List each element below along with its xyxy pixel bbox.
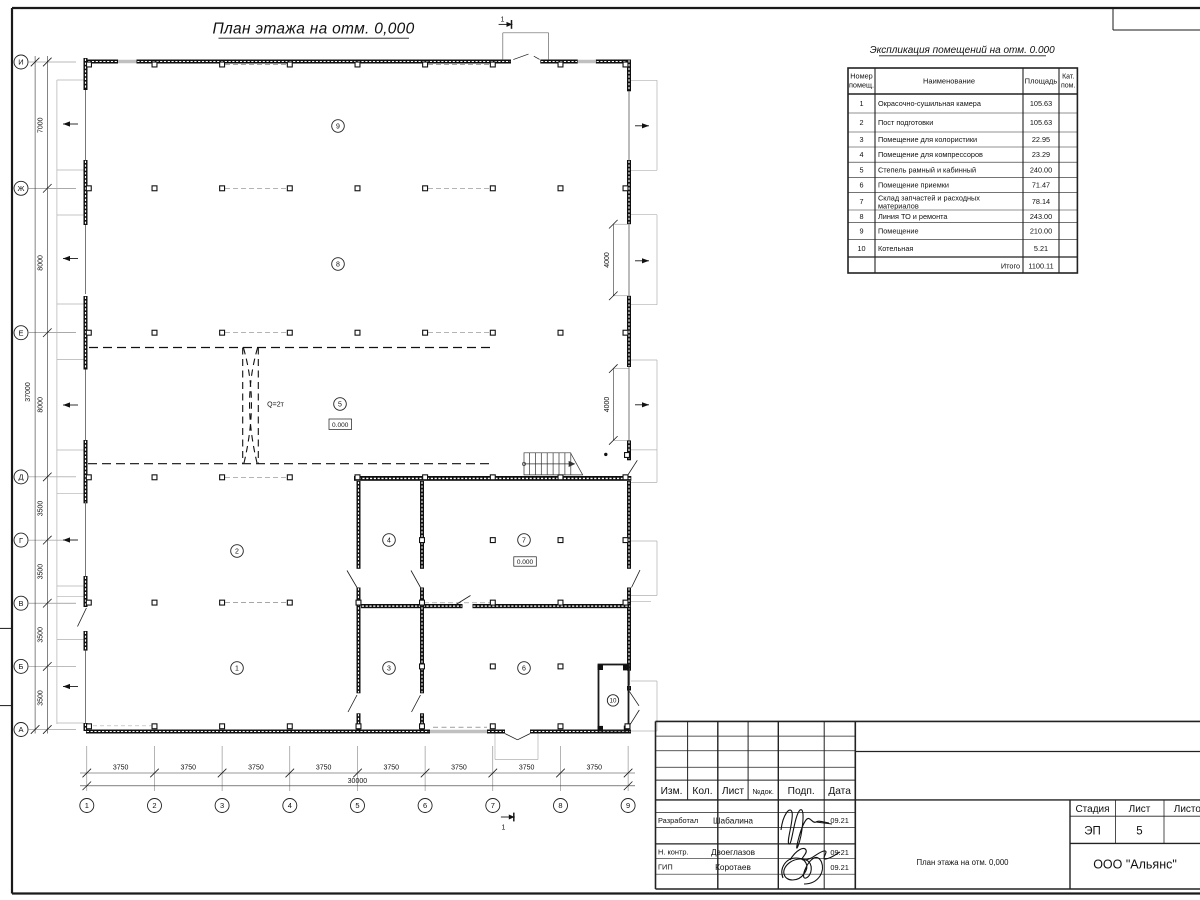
svg-text:Наименование: Наименование [923, 77, 975, 86]
svg-text:помещ.: помещ. [849, 81, 874, 90]
svg-text:2: 2 [152, 801, 156, 810]
svg-text:ГИП: ГИП [658, 863, 673, 872]
svg-text:8: 8 [558, 801, 562, 810]
svg-text:Кат.: Кат. [1062, 74, 1074, 81]
svg-text:10: 10 [857, 244, 865, 253]
svg-text:0.000: 0.000 [517, 559, 534, 566]
svg-text:240.00: 240.00 [1030, 165, 1052, 174]
svg-text:Лист: Лист [1129, 804, 1151, 815]
svg-text:3750: 3750 [181, 765, 197, 772]
svg-text:ООО "Альянс": ООО "Альянс" [1093, 858, 1177, 872]
svg-text:Дата: Дата [828, 786, 851, 797]
svg-text:3750: 3750 [248, 765, 264, 772]
svg-text:5: 5 [338, 402, 342, 409]
svg-text:3500: 3500 [37, 564, 44, 580]
svg-text:3750: 3750 [451, 765, 467, 772]
svg-text:3: 3 [220, 801, 224, 810]
svg-text:9: 9 [626, 801, 630, 810]
svg-text:В: В [18, 599, 23, 608]
svg-text:И: И [18, 58, 23, 67]
svg-text:3750: 3750 [587, 765, 603, 772]
svg-text:Ж: Ж [18, 184, 25, 193]
svg-text:Степель рамный и кабинный: Степель рамный и кабинный [878, 165, 976, 174]
svg-text:А: А [18, 725, 23, 734]
svg-text:78.14: 78.14 [1032, 197, 1050, 206]
svg-text:2: 2 [235, 549, 239, 556]
svg-text:8: 8 [859, 212, 863, 221]
svg-text:пом.: пом. [1061, 83, 1075, 90]
svg-text:Изм.: Изм. [661, 786, 683, 797]
svg-text:3750: 3750 [519, 765, 535, 772]
svg-text:План этажа на отм. 0,000: План этажа на отм. 0,000 [916, 858, 1009, 867]
svg-text:3500: 3500 [37, 501, 44, 517]
svg-text:105.63: 105.63 [1030, 118, 1052, 127]
svg-text:3: 3 [387, 666, 391, 673]
svg-text:Шабалина: Шабалина [713, 816, 753, 826]
svg-text:Пост подготовки: Пост подготовки [878, 118, 933, 127]
svg-text:Номер: Номер [850, 72, 872, 81]
svg-text:1: 1 [502, 825, 506, 832]
svg-text:Q=2т: Q=2т [267, 402, 284, 409]
svg-text:105.63: 105.63 [1030, 99, 1052, 108]
svg-text:22.95: 22.95 [1032, 135, 1050, 144]
svg-text:Помещение: Помещение [878, 227, 919, 236]
svg-text:Экспликация помещений на отм.: Экспликация помещений на отм. 0.000 [870, 45, 1055, 56]
svg-text:ЭП: ЭП [1084, 826, 1101, 838]
svg-text:09.21: 09.21 [830, 816, 849, 825]
svg-text:4: 4 [859, 150, 863, 159]
svg-text:4: 4 [387, 538, 391, 545]
svg-text:Котельная: Котельная [878, 244, 913, 253]
svg-text:3750: 3750 [316, 765, 332, 772]
svg-text:Итого: Итого [1001, 262, 1020, 271]
svg-text:10: 10 [610, 698, 617, 705]
svg-text:7: 7 [859, 197, 863, 206]
svg-text:материалов: материалов [878, 202, 919, 211]
svg-text:3750: 3750 [384, 765, 400, 772]
svg-text:Листов: Листов [1174, 804, 1200, 815]
svg-text:243.00: 243.00 [1030, 212, 1052, 221]
svg-text:09.21: 09.21 [830, 863, 849, 872]
svg-text:3750: 3750 [113, 765, 129, 772]
svg-text:3500: 3500 [37, 627, 44, 643]
svg-text:Б: Б [19, 662, 24, 671]
svg-text:5: 5 [1136, 826, 1142, 838]
svg-text:№док.: №док. [753, 787, 774, 796]
svg-text:71.47: 71.47 [1032, 180, 1050, 189]
svg-text:37000: 37000 [25, 382, 32, 402]
svg-text:5: 5 [859, 165, 863, 174]
svg-text:2: 2 [859, 118, 863, 127]
svg-text:210.00: 210.00 [1030, 227, 1052, 236]
svg-text:Стадия: Стадия [1075, 804, 1109, 815]
svg-text:6: 6 [423, 801, 427, 810]
svg-text:5: 5 [355, 801, 359, 810]
svg-text:Площадь: Площадь [1025, 77, 1058, 86]
svg-text:7: 7 [491, 801, 495, 810]
svg-text:3500: 3500 [37, 690, 44, 706]
svg-text:Н. контр.: Н. контр. [658, 848, 689, 857]
svg-text:9: 9 [859, 227, 863, 236]
svg-text:1: 1 [235, 666, 239, 673]
svg-text:Д: Д [18, 473, 23, 482]
svg-text:0.000: 0.000 [332, 422, 349, 429]
svg-text:9: 9 [336, 124, 340, 131]
svg-text:4: 4 [288, 801, 292, 810]
svg-text:4000: 4000 [604, 252, 611, 268]
svg-text:Е: Е [18, 328, 23, 337]
svg-text:Коротаев: Коротаев [715, 862, 751, 872]
svg-text:Кол.: Кол. [692, 786, 712, 797]
svg-text:1: 1 [859, 99, 863, 108]
svg-text:8000: 8000 [37, 255, 44, 271]
svg-text:Разработал: Разработал [658, 816, 698, 825]
svg-text:23.29: 23.29 [1032, 150, 1050, 159]
svg-text:Окрасочно-сушильная камера: Окрасочно-сушильная камера [878, 99, 982, 108]
svg-text:6: 6 [522, 666, 526, 673]
svg-text:4000: 4000 [604, 397, 611, 413]
svg-text:Помещение приемки: Помещение приемки [878, 180, 949, 189]
svg-text:7000: 7000 [37, 117, 44, 133]
svg-text:План этажа на отм. 0,000: План этажа на отм. 0,000 [212, 21, 414, 38]
svg-text:Подп.: Подп. [788, 786, 815, 797]
svg-text:Линия ТО и ремонта: Линия ТО и ремонта [878, 212, 948, 221]
svg-text:Лист: Лист [722, 786, 744, 797]
svg-text:1: 1 [85, 801, 89, 810]
svg-text:30000: 30000 [348, 778, 368, 785]
svg-text:Помещение для компрессоров: Помещение для компрессоров [878, 150, 983, 159]
svg-text:6: 6 [859, 180, 863, 189]
svg-text:8: 8 [336, 262, 340, 269]
svg-text:7: 7 [522, 538, 526, 545]
svg-text:8000: 8000 [37, 397, 44, 413]
svg-text:3: 3 [859, 135, 863, 144]
svg-text:Двоеглазов: Двоеглазов [711, 847, 756, 857]
svg-text:5.21: 5.21 [1034, 244, 1048, 253]
svg-text:Г: Г [19, 536, 23, 545]
svg-text:Помещение для колористики: Помещение для колористики [878, 135, 977, 144]
svg-text:1: 1 [501, 17, 505, 24]
svg-text:1100.11: 1100.11 [1028, 262, 1053, 271]
